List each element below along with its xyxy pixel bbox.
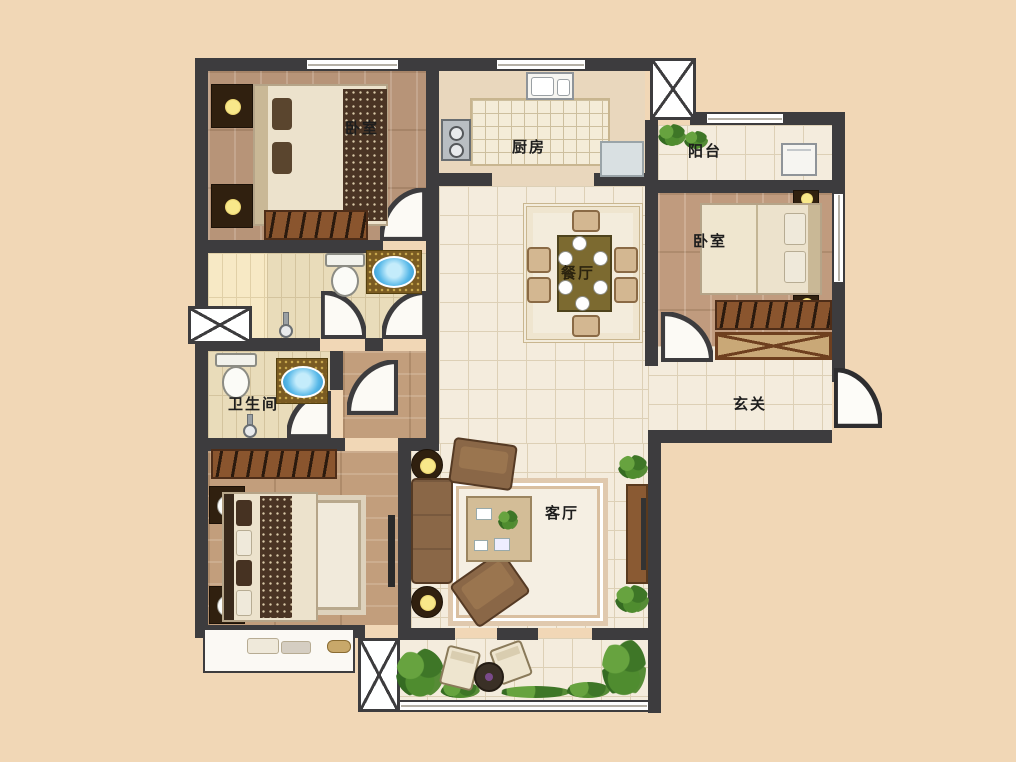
wall [195,240,383,253]
balcony-plants [566,682,610,698]
door-arc [382,291,426,339]
wall [645,180,658,366]
room-label-bedroom1: 卧室 [345,117,379,138]
window [495,58,587,71]
potted-plant [618,455,648,479]
dining-chair [572,210,600,232]
balcony-plants [602,638,646,698]
room-label-living: 客厅 [545,502,579,523]
dining-chair [527,277,551,303]
wall [648,430,832,443]
window [705,112,785,125]
window [305,58,400,71]
pillow [236,560,252,586]
balcony-window [398,700,650,712]
washing-machine [781,143,817,176]
table-plant [498,510,518,530]
dining-chair [614,277,638,303]
room-label-bathroom: 卫生间 [228,393,279,414]
pillow [272,142,292,174]
cushion [281,641,311,654]
wall [426,240,439,438]
headboard [224,494,234,620]
tv [388,515,395,587]
wall [398,438,411,628]
pillow [272,98,292,130]
sofa [411,478,453,584]
door-arc [347,360,398,415]
room-label-balcony-top: 阳台 [688,140,722,161]
armchair [448,437,518,491]
balcony-table [474,662,504,692]
refrigerator [600,141,644,177]
door-arc [661,312,713,362]
kitchen-sink [526,72,574,100]
wardrobe [211,449,337,479]
wall [497,628,538,640]
room-label-entry: 玄关 [733,393,767,414]
shaft-window [358,638,400,712]
sink-basin [281,366,325,398]
wall [426,173,492,186]
sink-basin [372,256,416,288]
wall [648,430,661,713]
room-label-bedroom2: 卧室 [693,230,727,251]
potted-plant [658,124,686,146]
shaft-window [188,306,252,344]
wall [330,351,343,390]
stove [441,119,471,161]
wall [398,628,455,640]
dining-chair [614,247,638,273]
headboard [255,86,268,224]
dining-chair [572,315,600,337]
tv [641,498,646,570]
side-table [411,449,443,481]
flue-shaft [650,58,696,120]
headboard [808,205,820,293]
shoe-cabinet [715,332,832,360]
potted-plant [615,585,649,613]
pillow [236,590,252,616]
pillow [784,213,806,245]
toilet [325,253,365,299]
shower-mixer [276,312,296,340]
wall [365,338,383,351]
wardrobe [264,210,368,240]
coffee-table [466,496,532,562]
nightstand [211,84,253,128]
nightstand [211,184,253,228]
bed-runner [343,89,387,221]
bay-window [203,628,355,673]
pillow [236,500,252,526]
pillow [784,251,806,283]
window [832,192,845,284]
wardrobe [715,300,832,330]
bed [253,84,388,226]
side-table [411,586,443,618]
room-label-dining: 餐厅 [561,262,595,283]
bed [222,492,318,622]
shower-mixer [240,414,260,438]
entry-door-arc [834,368,882,428]
pillow [236,530,252,556]
dining-chair [527,247,551,273]
cushion [247,638,279,654]
balcony-plants [500,686,570,698]
tray [327,640,351,653]
floor-plan: 卧室 厨房 阳台 卧室 餐厅 卫生间 玄关 客厅 [0,0,1016,762]
bed-runner [260,496,292,618]
wall [426,58,439,253]
room-label-kitchen: 厨房 [512,136,546,157]
balcony-plants [396,648,444,698]
